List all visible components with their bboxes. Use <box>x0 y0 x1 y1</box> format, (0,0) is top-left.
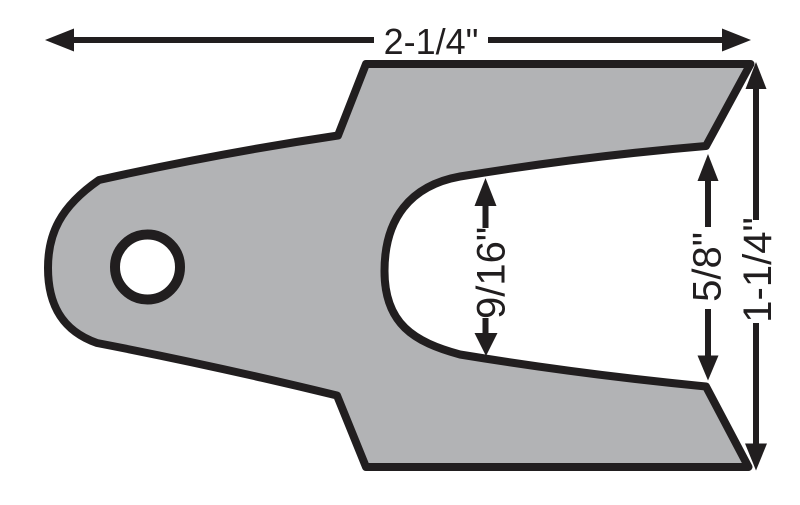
svg-text:2-1/4": 2-1/4" <box>384 21 479 62</box>
svg-text:1-1/4": 1-1/4" <box>736 217 780 322</box>
svg-text:5/8": 5/8" <box>686 232 730 302</box>
svg-text:9/16": 9/16" <box>470 227 514 319</box>
